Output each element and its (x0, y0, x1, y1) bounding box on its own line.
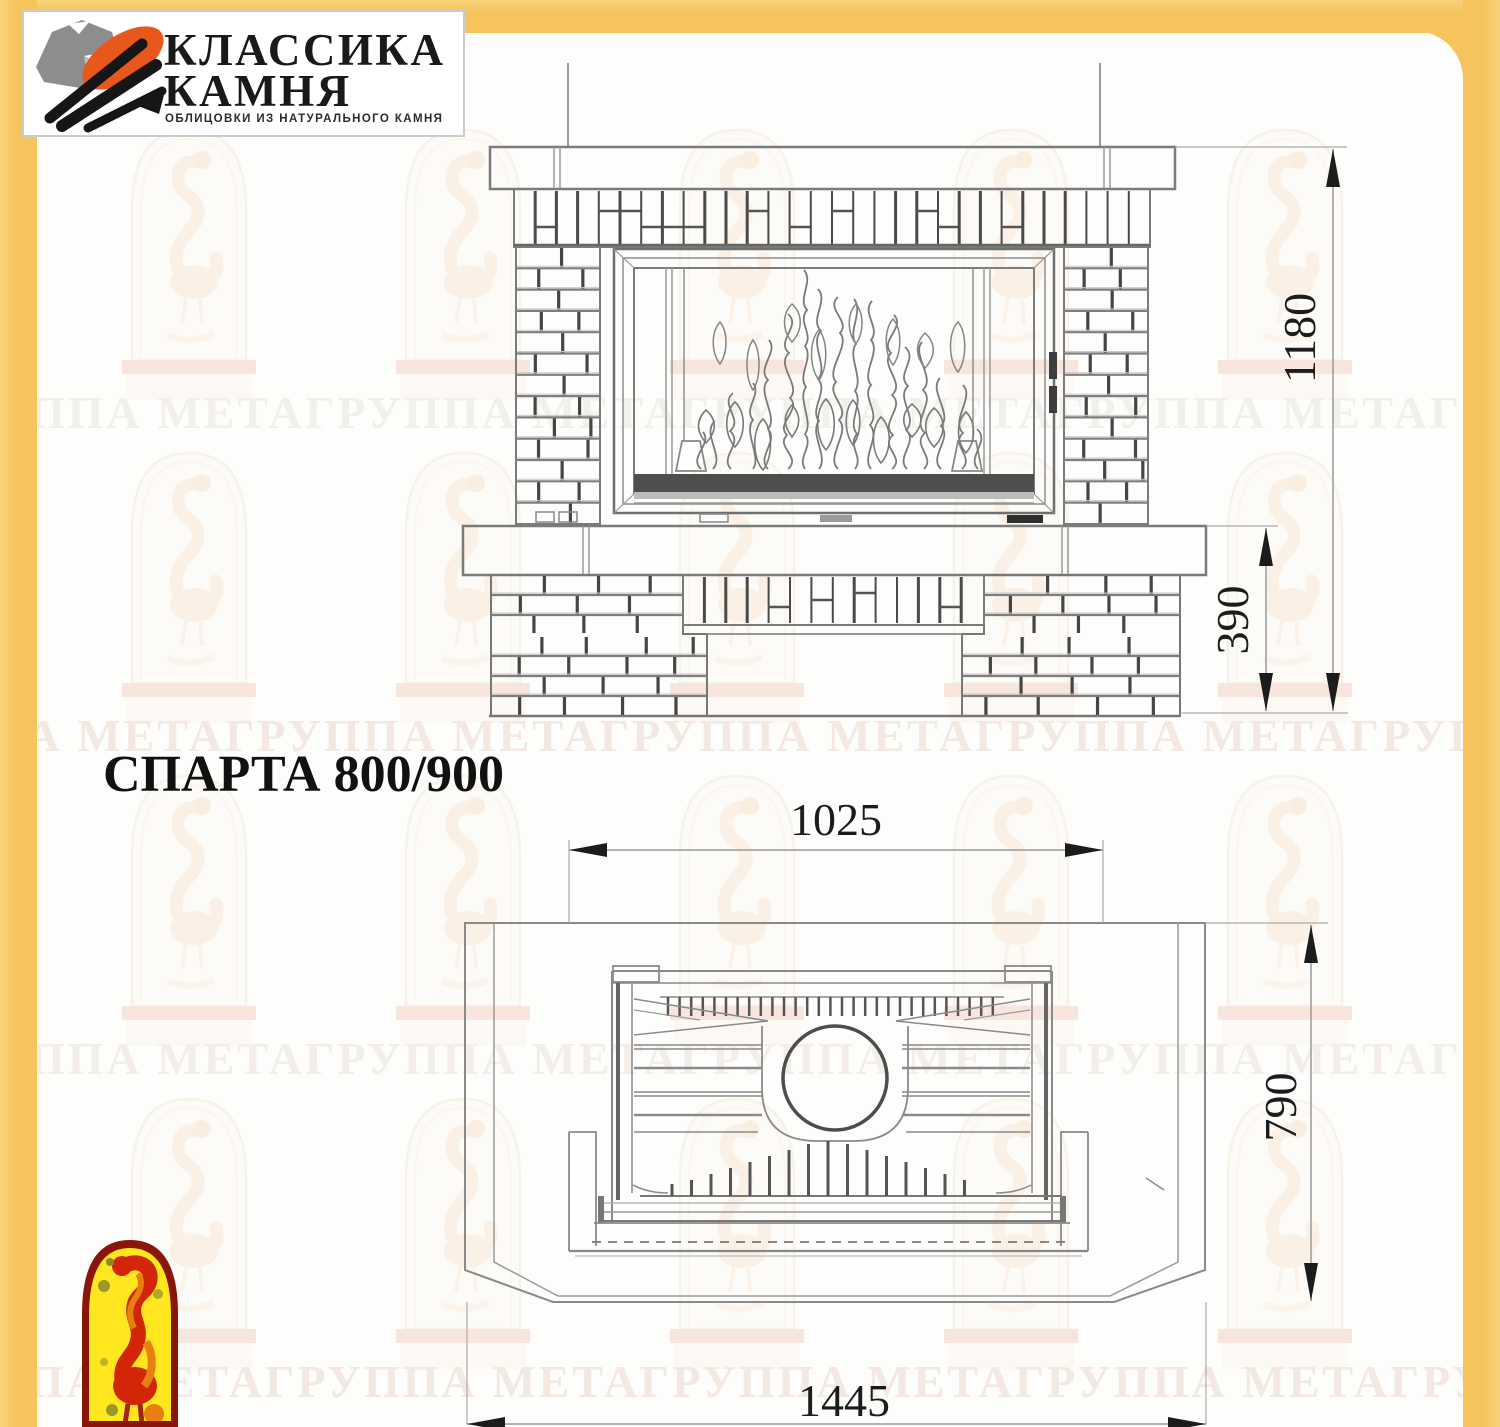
svg-text:КАМНЯ: КАМНЯ (164, 66, 352, 116)
svg-text:1025: 1025 (790, 794, 882, 845)
svg-text:790: 790 (1255, 1073, 1306, 1142)
svg-text:ОБЛИЦОВКИ ИЗ НАТУРАЛЬНОГО КАМН: ОБЛИЦОВКИ ИЗ НАТУРАЛЬНОГО КАМНЯ (165, 113, 443, 125)
svg-text:1445: 1445 (798, 1375, 890, 1426)
svg-text:390: 390 (1207, 586, 1258, 655)
svg-text:1180: 1180 (1274, 293, 1325, 383)
svg-text:СПАРТА 800/900: СПАРТА 800/900 (103, 746, 504, 803)
